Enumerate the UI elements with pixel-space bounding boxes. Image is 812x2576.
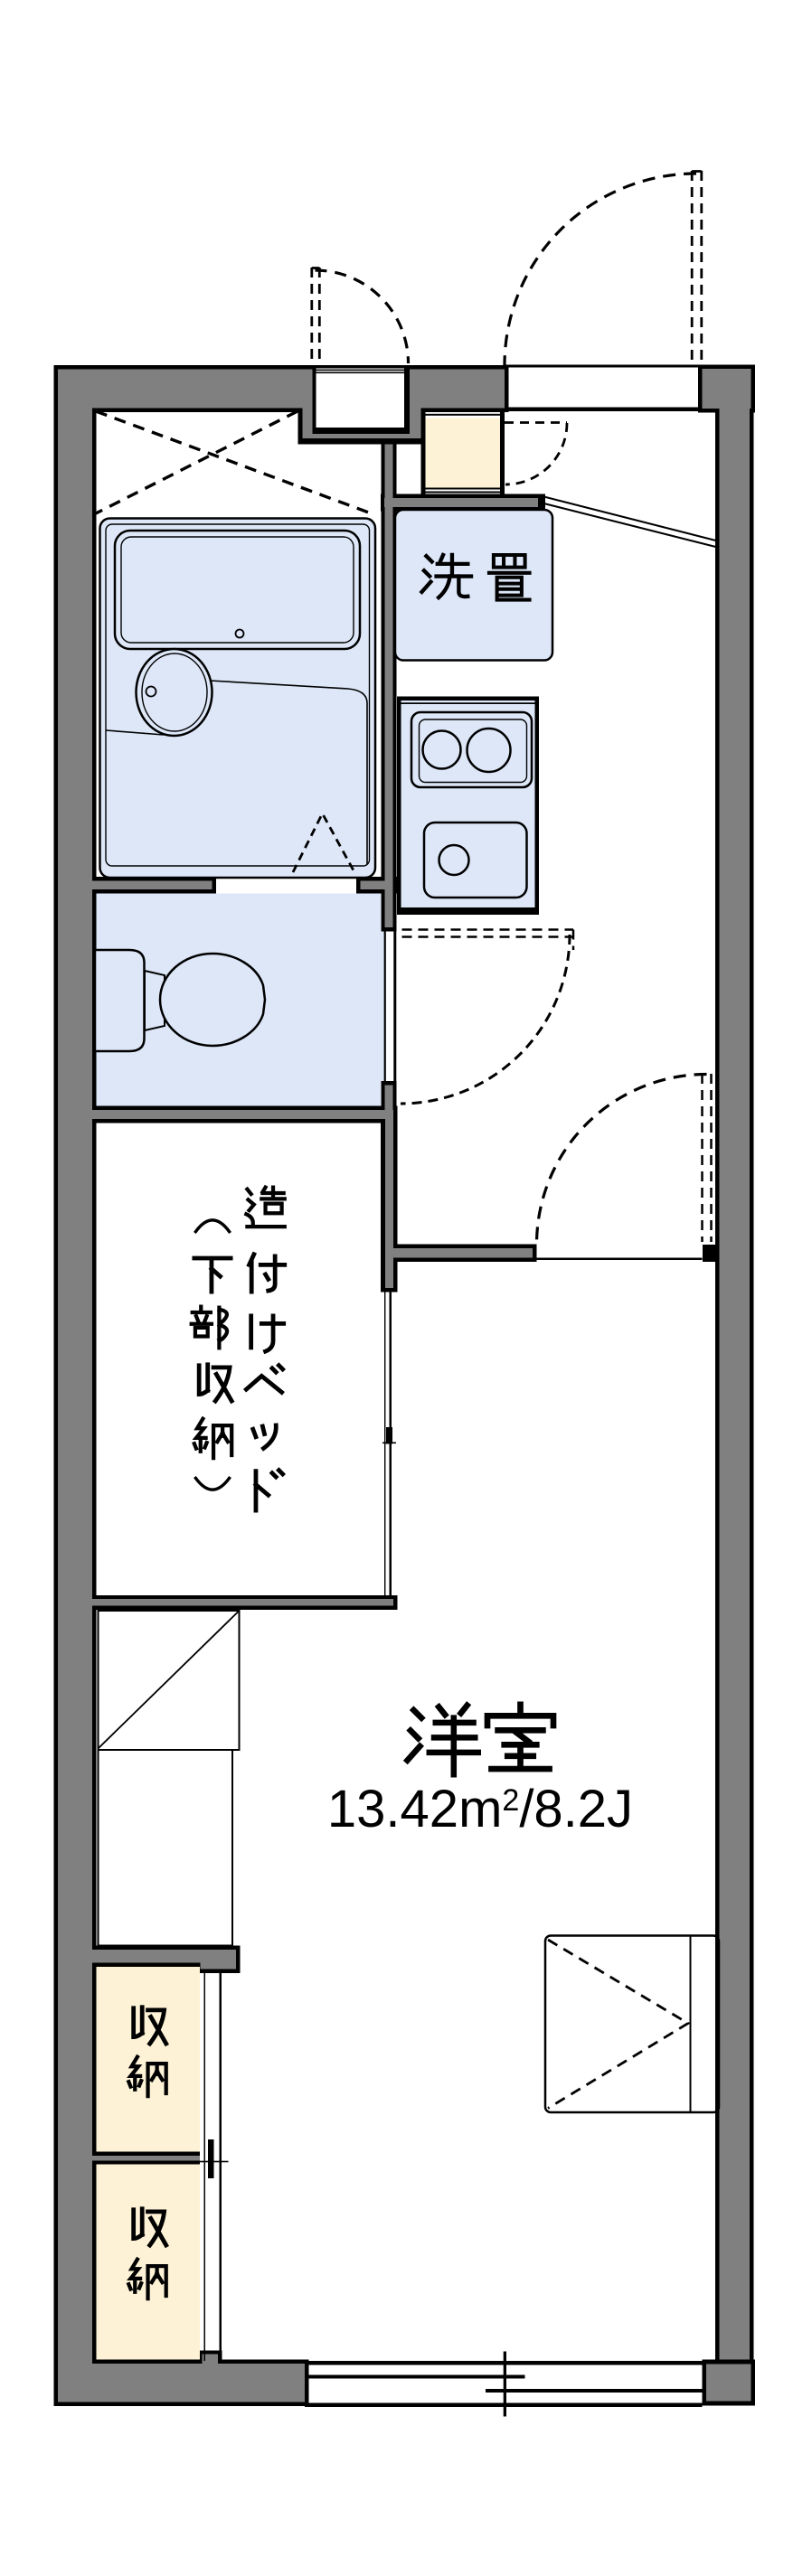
svg-text:13.42m2/8.2J: 13.42m2/8.2J	[327, 1780, 633, 1838]
